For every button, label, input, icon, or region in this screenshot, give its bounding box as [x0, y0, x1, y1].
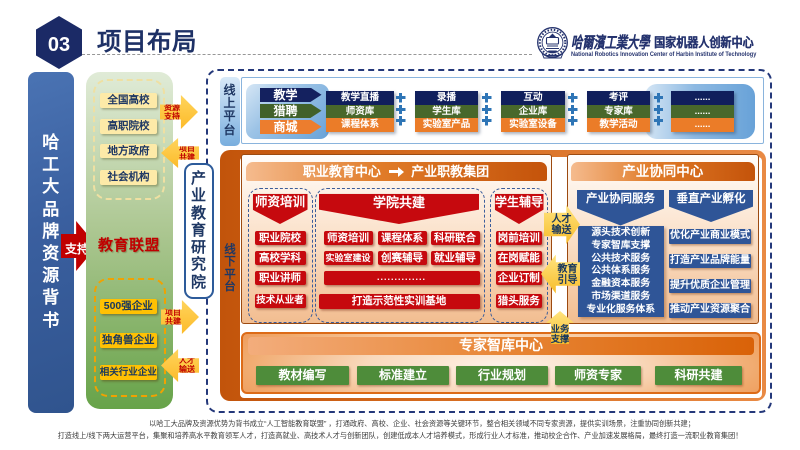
- svg-text:03: 03: [48, 34, 70, 56]
